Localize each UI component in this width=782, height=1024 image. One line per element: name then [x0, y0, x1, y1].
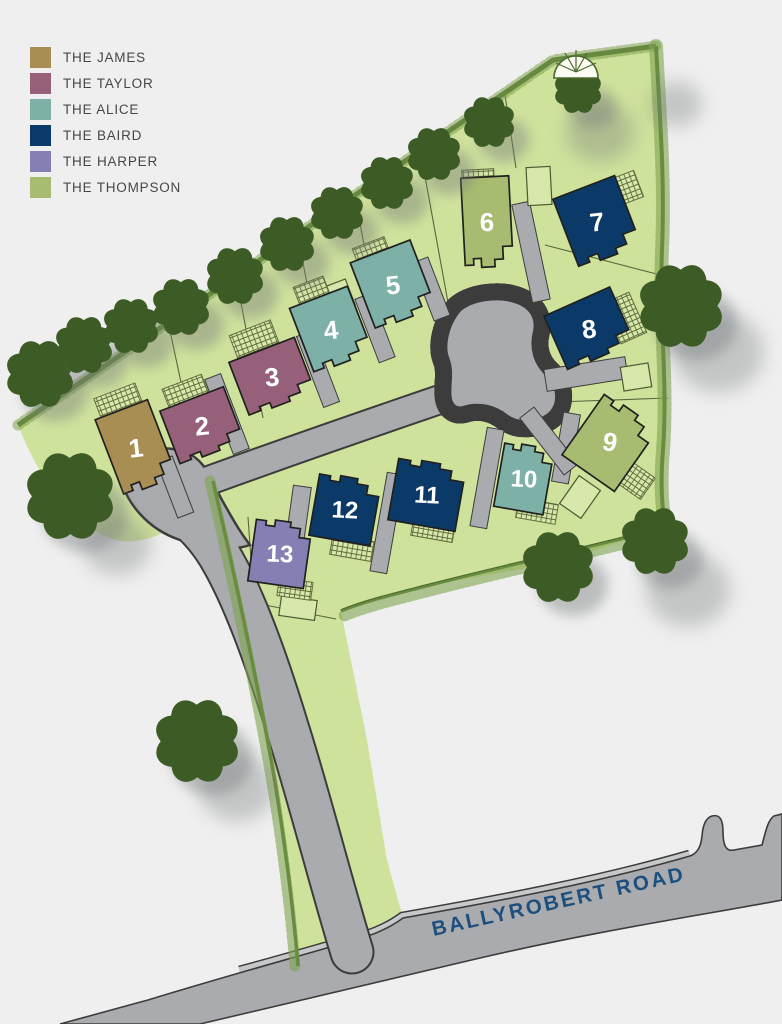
- plot-number: 13: [266, 540, 294, 568]
- plot-number: 10: [510, 465, 538, 493]
- legend-item-alice: THE ALICE: [30, 96, 181, 122]
- tree-shadow: [650, 81, 702, 127]
- legend-label: THE BAIRD: [63, 128, 142, 143]
- garage-outline: [620, 363, 651, 391]
- garage-outline: [279, 596, 317, 621]
- legend-item-harper: THE HARPER: [30, 148, 181, 174]
- legend-swatch-alice: [30, 99, 51, 120]
- legend-swatch-harper: [30, 151, 51, 172]
- plot-number: 6: [480, 207, 495, 237]
- legend-swatch-james: [30, 47, 51, 68]
- site-plan: 12345678910111213: [0, 0, 782, 1024]
- legend-label: THE HARPER: [63, 154, 158, 169]
- legend-label: THE THOMPSON: [63, 180, 181, 195]
- ballyrobert-road: [60, 814, 782, 1024]
- legend-label: THE ALICE: [63, 102, 139, 117]
- legend-swatch-taylor: [30, 73, 51, 94]
- tree-icon: [151, 695, 253, 795]
- legend-label: THE TAYLOR: [63, 76, 154, 91]
- legend-label: THE JAMES: [63, 50, 146, 65]
- legend-swatch-baird: [30, 125, 51, 146]
- legend-item-thompson: THE THOMPSON: [30, 174, 181, 200]
- turning-head: [439, 292, 564, 429]
- legend-item-james: THE JAMES: [30, 44, 181, 70]
- garage-outline: [526, 166, 552, 205]
- legend: THE JAMES THE TAYLOR THE ALICE THE BAIRD…: [30, 44, 181, 200]
- legend-swatch-thompson: [30, 177, 51, 198]
- plot-number: 11: [414, 481, 441, 509]
- legend-item-taylor: THE TAYLOR: [30, 70, 181, 96]
- legend-item-baird: THE BAIRD: [30, 122, 181, 148]
- plot-number: 12: [331, 496, 359, 524]
